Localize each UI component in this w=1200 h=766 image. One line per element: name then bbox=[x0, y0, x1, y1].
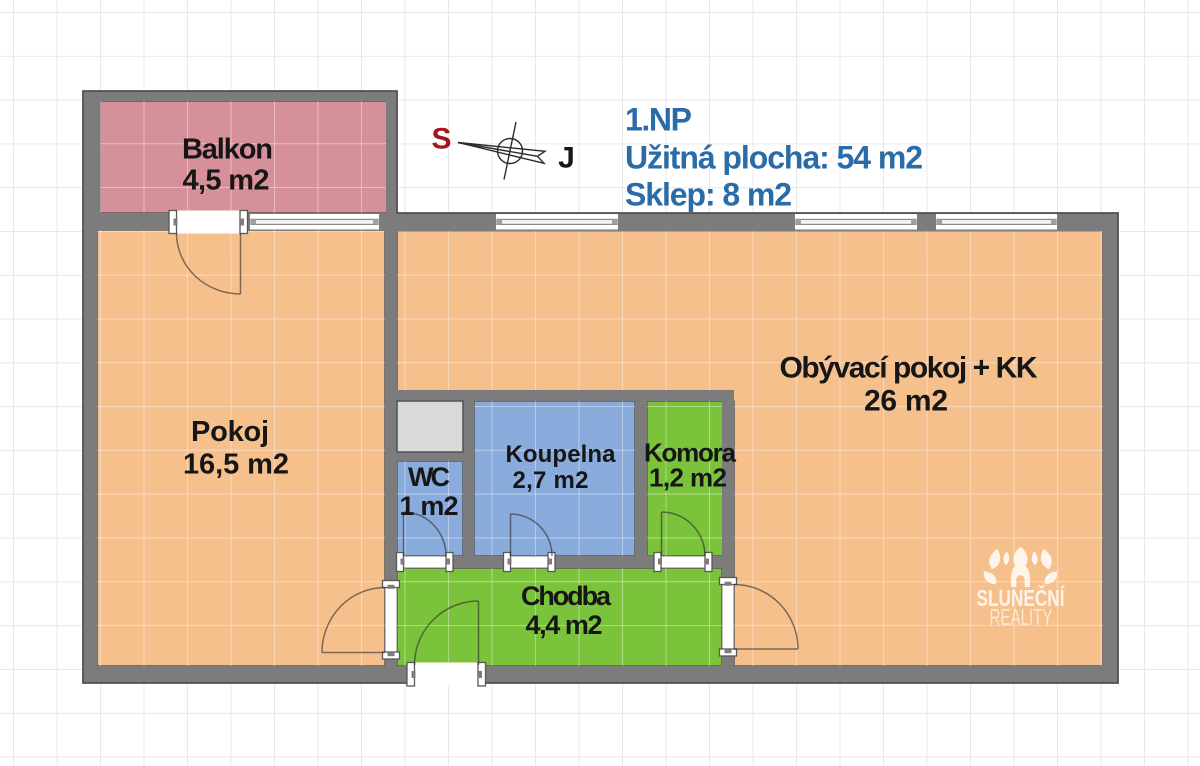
svg-text:Koupelna: Koupelna bbox=[506, 441, 617, 468]
svg-text:Užitná plocha: 54 m2: Užitná plocha: 54 m2 bbox=[625, 140, 923, 176]
svg-text:1,2 m2: 1,2 m2 bbox=[649, 463, 727, 493]
svg-text:4,5 m2: 4,5 m2 bbox=[183, 165, 270, 197]
svg-text:4,4 m2: 4,4 m2 bbox=[526, 610, 603, 640]
svg-text:J: J bbox=[558, 141, 575, 174]
svg-text:WC: WC bbox=[408, 462, 450, 492]
svg-text:Obývací pokoj + KK: Obývací pokoj + KK bbox=[780, 352, 1038, 385]
svg-text:Sklep: 8 m2: Sklep: 8 m2 bbox=[625, 177, 792, 213]
svg-text:26 m2: 26 m2 bbox=[864, 385, 948, 418]
svg-text:16,5 m2: 16,5 m2 bbox=[183, 449, 289, 481]
svg-text:1.NP: 1.NP bbox=[625, 102, 692, 138]
svg-text:Balkon: Balkon bbox=[182, 134, 273, 166]
svg-text:S: S bbox=[431, 123, 451, 156]
svg-text:Chodba: Chodba bbox=[521, 581, 612, 611]
svg-text:REALITY: REALITY bbox=[990, 604, 1053, 630]
svg-text:Pokoj: Pokoj bbox=[191, 416, 269, 448]
svg-text:2,7 m2: 2,7 m2 bbox=[513, 467, 589, 494]
svg-text:1 m2: 1 m2 bbox=[400, 491, 459, 521]
